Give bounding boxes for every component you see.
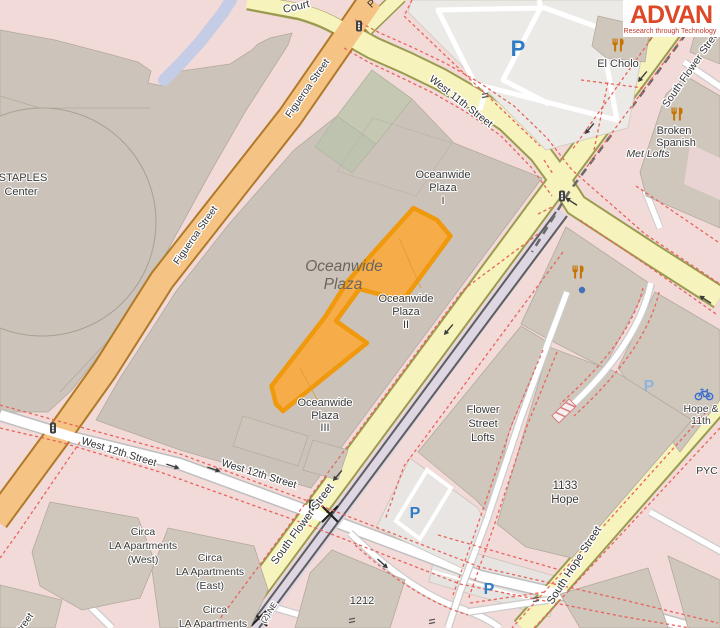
svg-text:Oceanwide: Oceanwide: [415, 169, 470, 181]
svg-text:Broken: Broken: [657, 125, 692, 137]
svg-text:STAPLES: STAPLES: [0, 172, 47, 184]
svg-text:Center: Center: [4, 186, 37, 198]
svg-text:P: P: [511, 36, 526, 61]
svg-text:Research through Technology: Research through Technology: [624, 28, 717, 35]
svg-text:III: III: [320, 422, 329, 434]
svg-text:P: P: [410, 505, 421, 522]
svg-text:LA Apartments: LA Apartments: [176, 566, 244, 578]
svg-text:II: II: [403, 319, 409, 331]
svg-text:Hope &: Hope &: [683, 403, 718, 415]
svg-text:1133: 1133: [553, 480, 578, 492]
svg-text:1212: 1212: [350, 595, 374, 607]
svg-text:El Cholo: El Cholo: [597, 58, 639, 70]
svg-text:Oceanwide: Oceanwide: [378, 293, 433, 305]
svg-text:LA Apartments: LA Apartments: [179, 618, 247, 628]
svg-text:Circa: Circa: [198, 552, 223, 564]
svg-text:Street: Street: [468, 418, 497, 430]
svg-text:P: P: [644, 378, 655, 395]
svg-text:Plaza: Plaza: [429, 182, 457, 194]
svg-text:LA Apartments: LA Apartments: [109, 540, 177, 552]
svg-text:(East): (East): [196, 580, 224, 592]
svg-text:PYC: PYC: [696, 465, 718, 477]
svg-text:Oceanwide: Oceanwide: [305, 258, 383, 275]
svg-text:Lofts: Lofts: [471, 432, 495, 444]
svg-text:P: P: [484, 581, 495, 598]
svg-text:Circa: Circa: [131, 526, 156, 538]
svg-text:(West): (West): [128, 554, 159, 566]
svg-text:Flower: Flower: [466, 404, 499, 416]
svg-text:Met Lofts: Met Lofts: [626, 148, 670, 160]
svg-text:ADVAN: ADVAN: [630, 1, 712, 29]
svg-text:I: I: [441, 195, 444, 207]
svg-text:Oceanwide: Oceanwide: [297, 397, 352, 409]
svg-text:Circa: Circa: [203, 604, 228, 616]
svg-text:Plaza: Plaza: [392, 306, 420, 318]
svg-text:Plaza: Plaza: [324, 276, 363, 293]
svg-text:Plaza: Plaza: [311, 410, 339, 422]
svg-text:11th: 11th: [691, 415, 711, 427]
svg-text:Hope: Hope: [551, 494, 579, 506]
